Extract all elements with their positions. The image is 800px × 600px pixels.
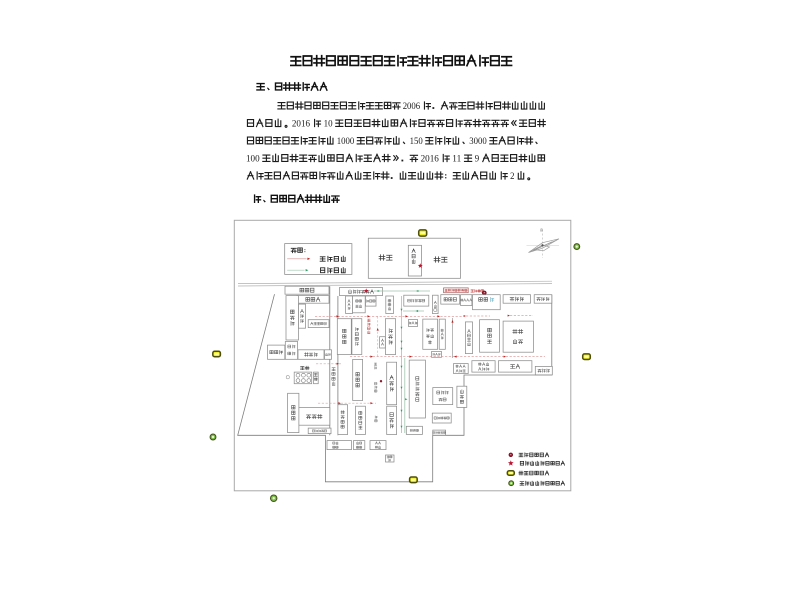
svg-text:2: 2 (510, 171, 516, 182)
svg-text:11: 11 (452, 153, 463, 164)
svg-text:9: 9 (475, 153, 482, 164)
svg-text:100: 100 (246, 153, 262, 164)
svg-text:2016: 2016 (292, 118, 312, 129)
svg-text:3000: 3000 (469, 136, 489, 147)
svg-text:150: 150 (410, 136, 425, 147)
svg-text:10: 10 (324, 118, 335, 129)
svg-text:2016: 2016 (421, 153, 442, 164)
svg-text:2006: 2006 (403, 101, 423, 112)
svg-text:1000: 1000 (337, 136, 357, 147)
